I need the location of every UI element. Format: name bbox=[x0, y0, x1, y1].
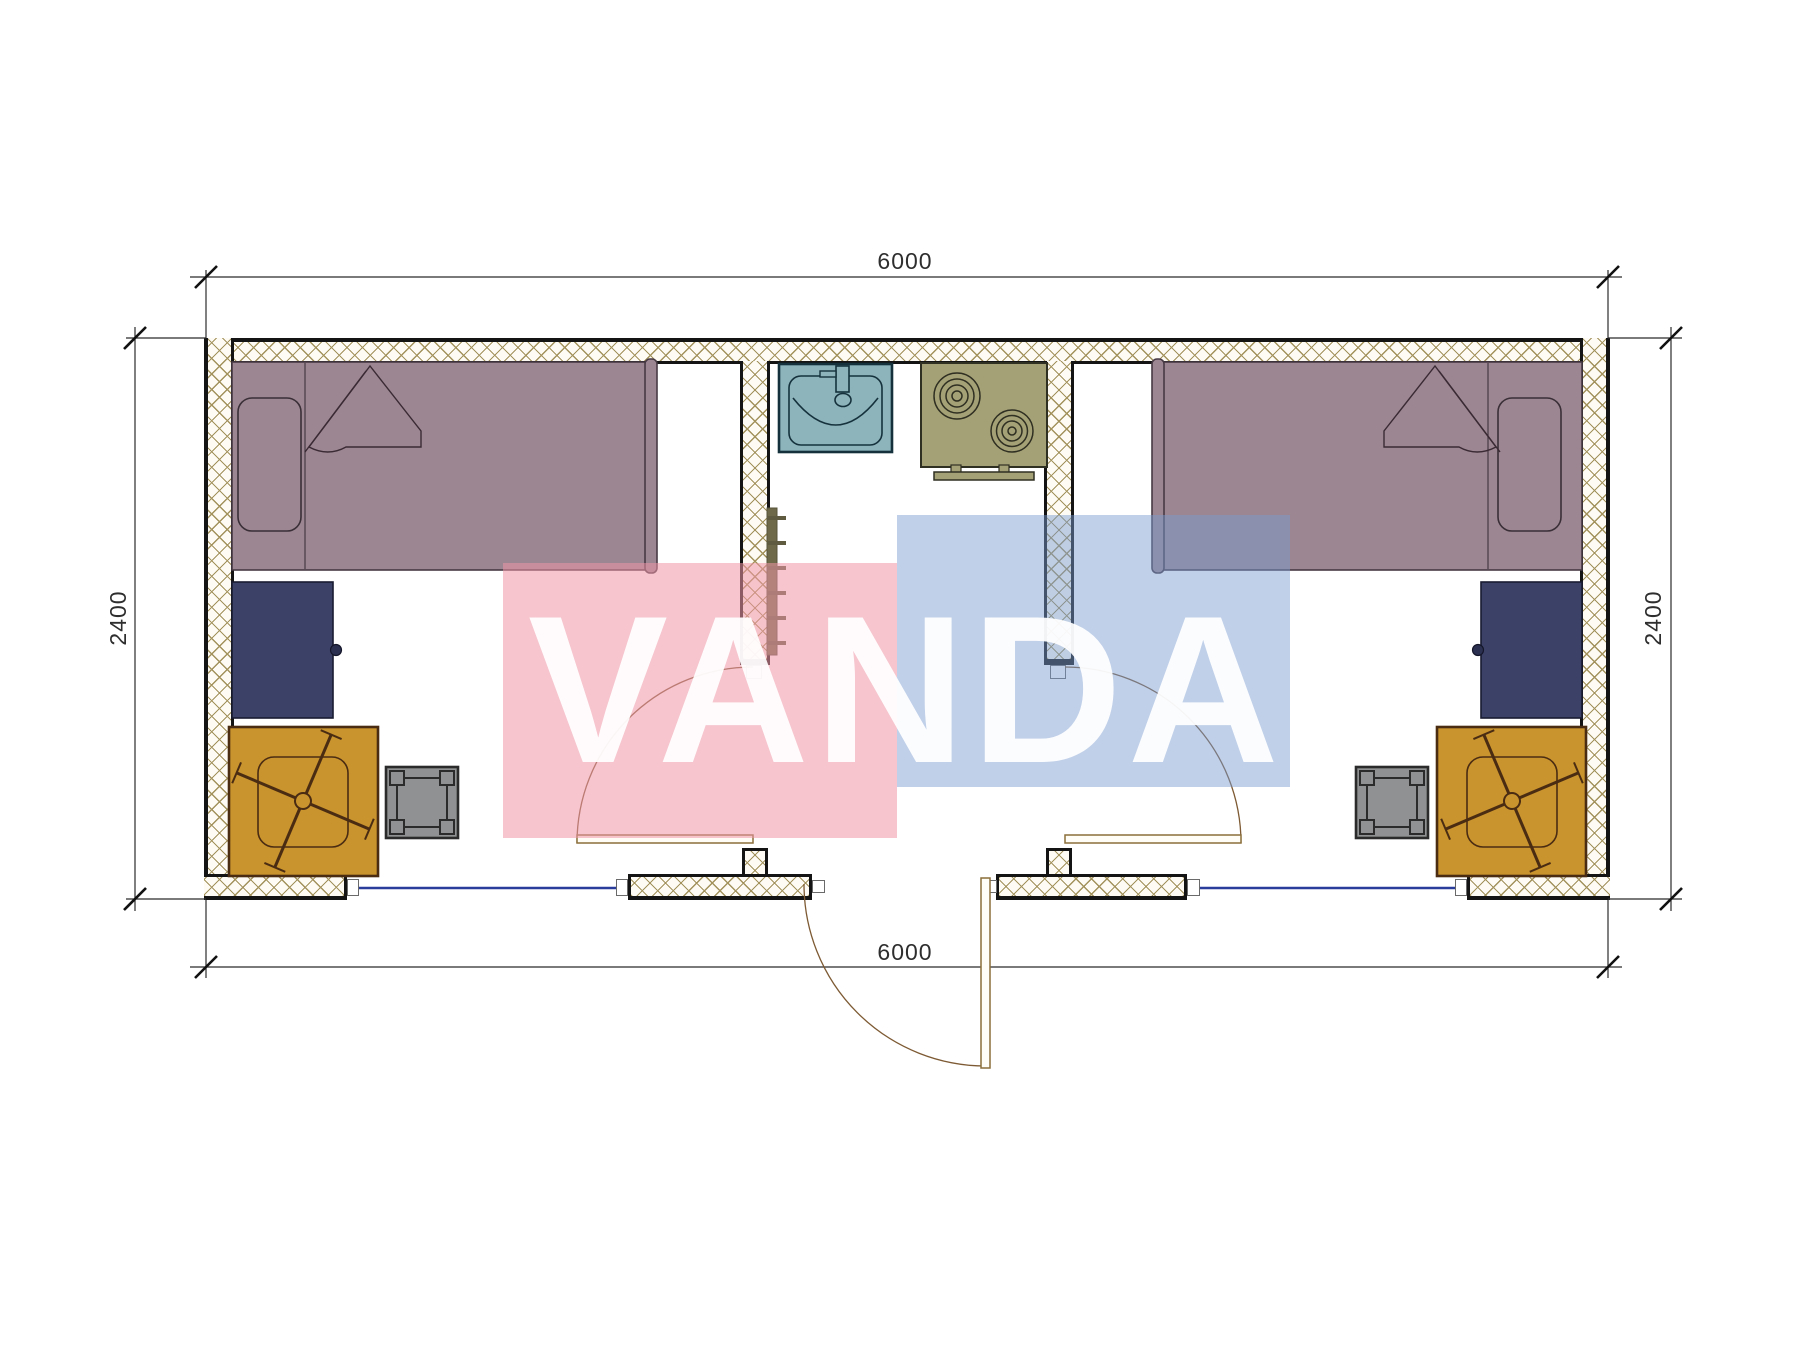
watermark-text: VANDA bbox=[520, 585, 1292, 795]
dimension-label-top: 6000 bbox=[855, 249, 955, 273]
faucet-spout bbox=[820, 371, 836, 377]
desk-right-knob bbox=[1473, 645, 1484, 656]
bed-left bbox=[232, 359, 657, 573]
office-chair-right bbox=[1435, 724, 1589, 878]
dimension-label-left: 2400 bbox=[106, 568, 130, 668]
stove bbox=[921, 363, 1047, 480]
entrance-door-leaf bbox=[981, 878, 990, 1068]
wash-basin bbox=[779, 364, 892, 452]
door-leaf-right bbox=[1065, 835, 1241, 843]
stool-right bbox=[1356, 767, 1428, 838]
pillow-right bbox=[1498, 398, 1561, 531]
entrance-door-swing-arc bbox=[804, 884, 986, 1066]
pillow-left bbox=[238, 398, 301, 531]
faucet bbox=[836, 366, 849, 392]
floor-plan-canvas: VANDA 6000 6000 2400 2400 bbox=[0, 0, 1800, 1350]
desk-right bbox=[1473, 582, 1583, 718]
office-chair-left bbox=[226, 724, 380, 878]
dimension-label-bottom: 6000 bbox=[855, 940, 955, 964]
desk-left bbox=[232, 582, 342, 718]
entrance-door bbox=[804, 878, 990, 1068]
desk-left-knob bbox=[331, 645, 342, 656]
bed-left-footboard bbox=[645, 359, 657, 573]
stove-handle-bar bbox=[934, 472, 1034, 480]
dimension-label-right: 2400 bbox=[1641, 568, 1665, 668]
stool-left bbox=[386, 767, 458, 838]
